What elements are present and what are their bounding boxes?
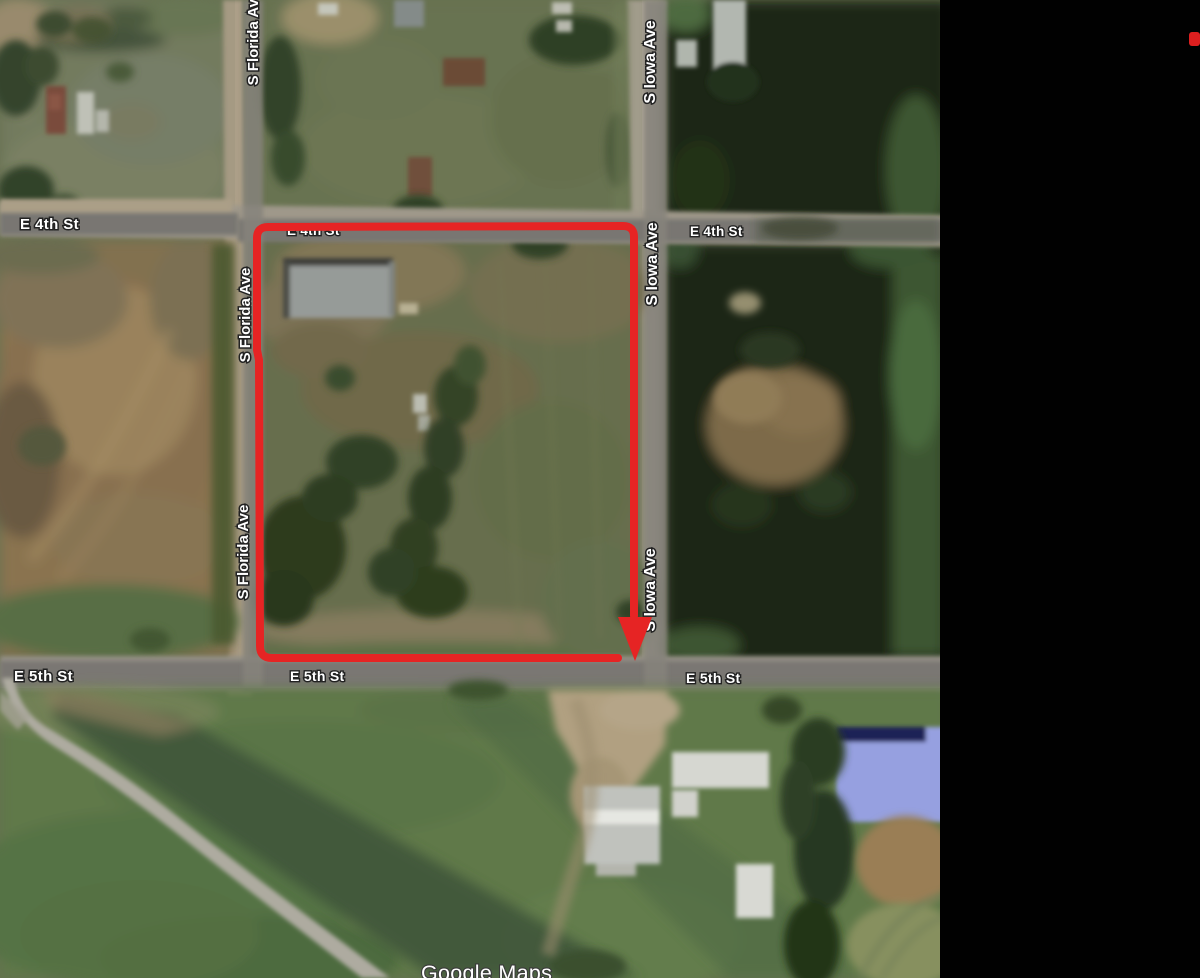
svg-text:E 4th St: E 4th St — [690, 224, 743, 239]
svg-text:S Iowa Ave: S Iowa Ave — [644, 222, 661, 305]
svg-text:E 4th St: E 4th St — [20, 216, 79, 233]
svg-text:S Iowa Ave: S Iowa Ave — [642, 20, 659, 103]
svg-text:S Florida Ave: S Florida Ave — [245, 0, 262, 85]
svg-text:Google Maps: Google Maps — [421, 961, 552, 978]
svg-text:S Florida Ave: S Florida Ave — [237, 268, 254, 363]
svg-text:S Florida Ave: S Florida Ave — [235, 505, 252, 600]
svg-text:E 5th St: E 5th St — [686, 670, 741, 686]
svg-text:E 5th St: E 5th St — [14, 668, 73, 685]
svg-text:E 5th St: E 5th St — [290, 668, 345, 684]
